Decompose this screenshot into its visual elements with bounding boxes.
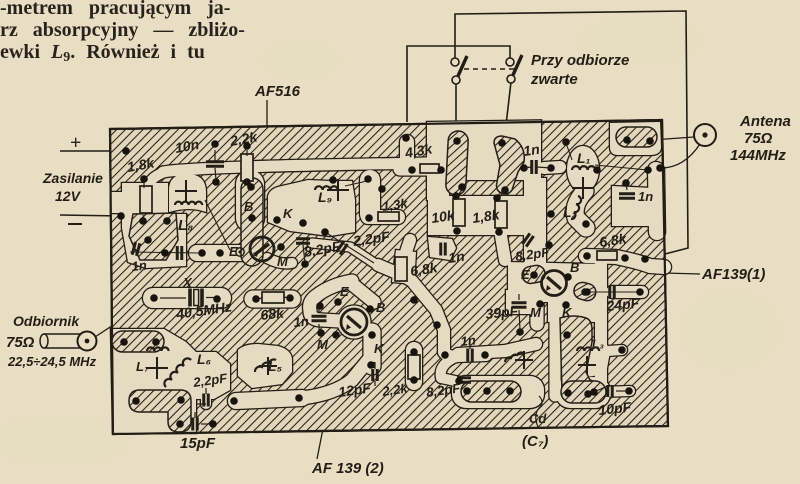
svg-text:144MHz: 144MHz xyxy=(730,147,786,164)
svg-text:AF139(1): AF139(1) xyxy=(701,266,765,283)
svg-text:75Ω: 75Ω xyxy=(744,130,773,147)
svg-text:22,5÷24,5 MHz: 22,5÷24,5 MHz xyxy=(7,354,97,369)
svg-text:Antena: Antena xyxy=(739,113,791,130)
svg-text:75Ω: 75Ω xyxy=(6,334,35,351)
svg-text:Przy odbiorze: Przy odbiorze xyxy=(531,52,629,69)
svg-text:zwarte: zwarte xyxy=(530,71,578,88)
svg-text:Odbiornik: Odbiornik xyxy=(13,313,80,329)
svg-text:rz absorpcyjny — zbliżo-: rz absorpcyjny — zbliżo- xyxy=(0,19,245,41)
svg-text:ewki L9. Również i tu: ewki L9. Również i tu xyxy=(0,41,205,65)
svg-text:-metrem pracującym ja-: -metrem pracującym ja- xyxy=(0,0,230,19)
svg-text:AF516: AF516 xyxy=(254,83,301,100)
svg-text:15pF: 15pF xyxy=(180,435,216,452)
svg-text:12V: 12V xyxy=(55,188,82,204)
svg-text:Zasilanie: Zasilanie xyxy=(42,170,103,186)
svg-text:AF 139 (2): AF 139 (2) xyxy=(311,460,384,477)
svg-text:(C₇): (C₇) xyxy=(522,433,548,450)
